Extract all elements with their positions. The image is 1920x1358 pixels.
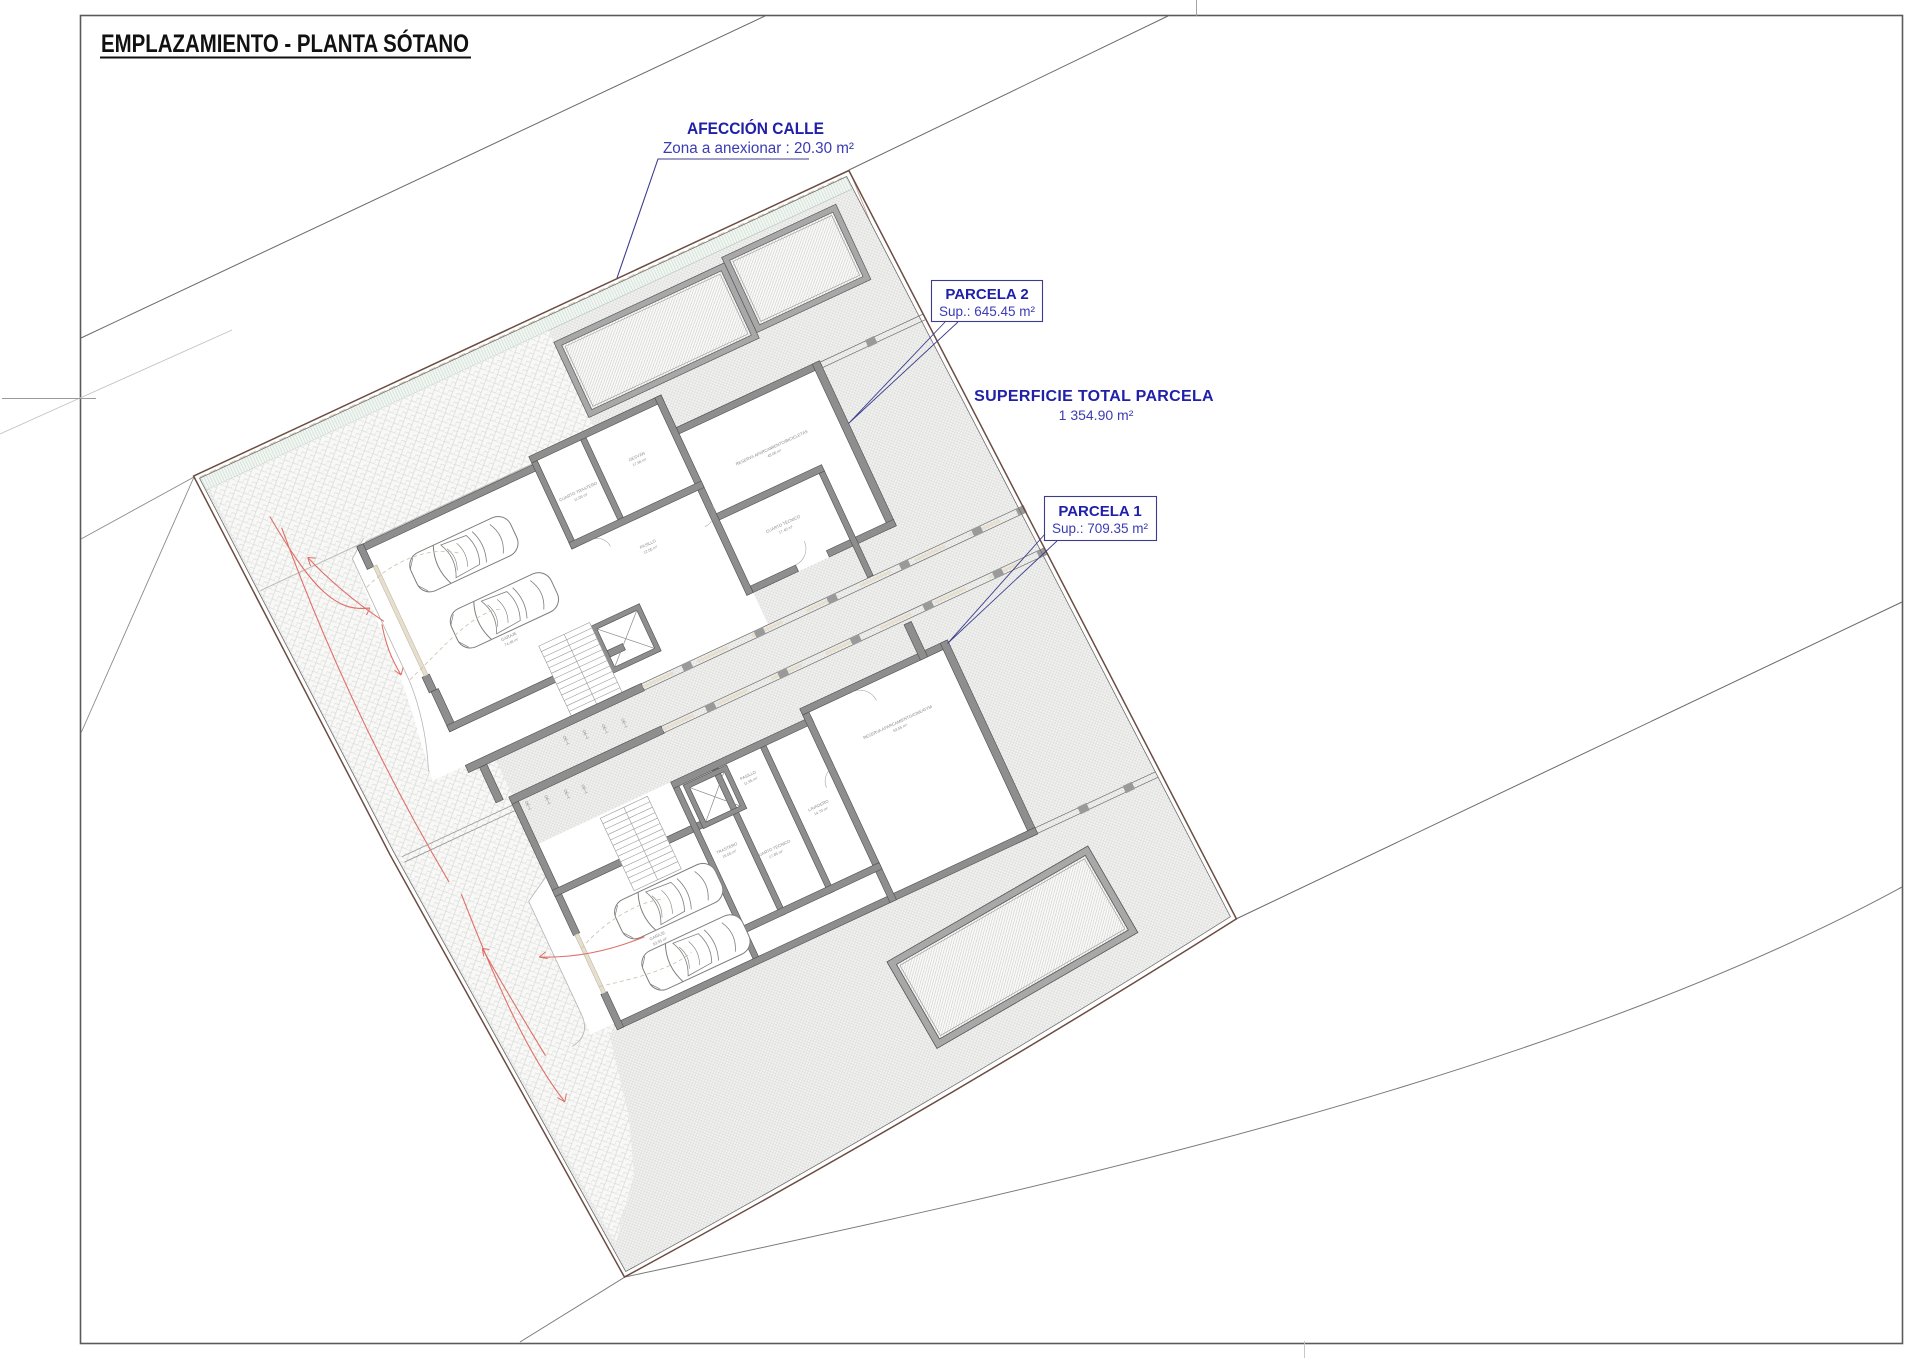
svg-text:PARCELA 1: PARCELA 1 <box>1058 503 1141 520</box>
svg-text:1 354.90 m²: 1 354.90 m² <box>1059 407 1134 423</box>
svg-text:PARCELA 2: PARCELA 2 <box>945 286 1028 303</box>
svg-text:Sup.: 709.35 m²: Sup.: 709.35 m² <box>1052 521 1149 536</box>
svg-text:EMPLAZAMIENTO - PLANTA SÓTANO: EMPLAZAMIENTO - PLANTA SÓTANO <box>101 28 469 58</box>
svg-text:AFECCIÓN CALLE: AFECCIÓN CALLE <box>687 119 824 138</box>
svg-text:Sup.: 645.45 m²: Sup.: 645.45 m² <box>939 304 1036 319</box>
svg-text:Zona a anexionar : 20.30 m²: Zona a anexionar : 20.30 m² <box>663 140 854 157</box>
svg-text:SUPERFICIE TOTAL PARCELA: SUPERFICIE TOTAL PARCELA <box>974 388 1214 405</box>
